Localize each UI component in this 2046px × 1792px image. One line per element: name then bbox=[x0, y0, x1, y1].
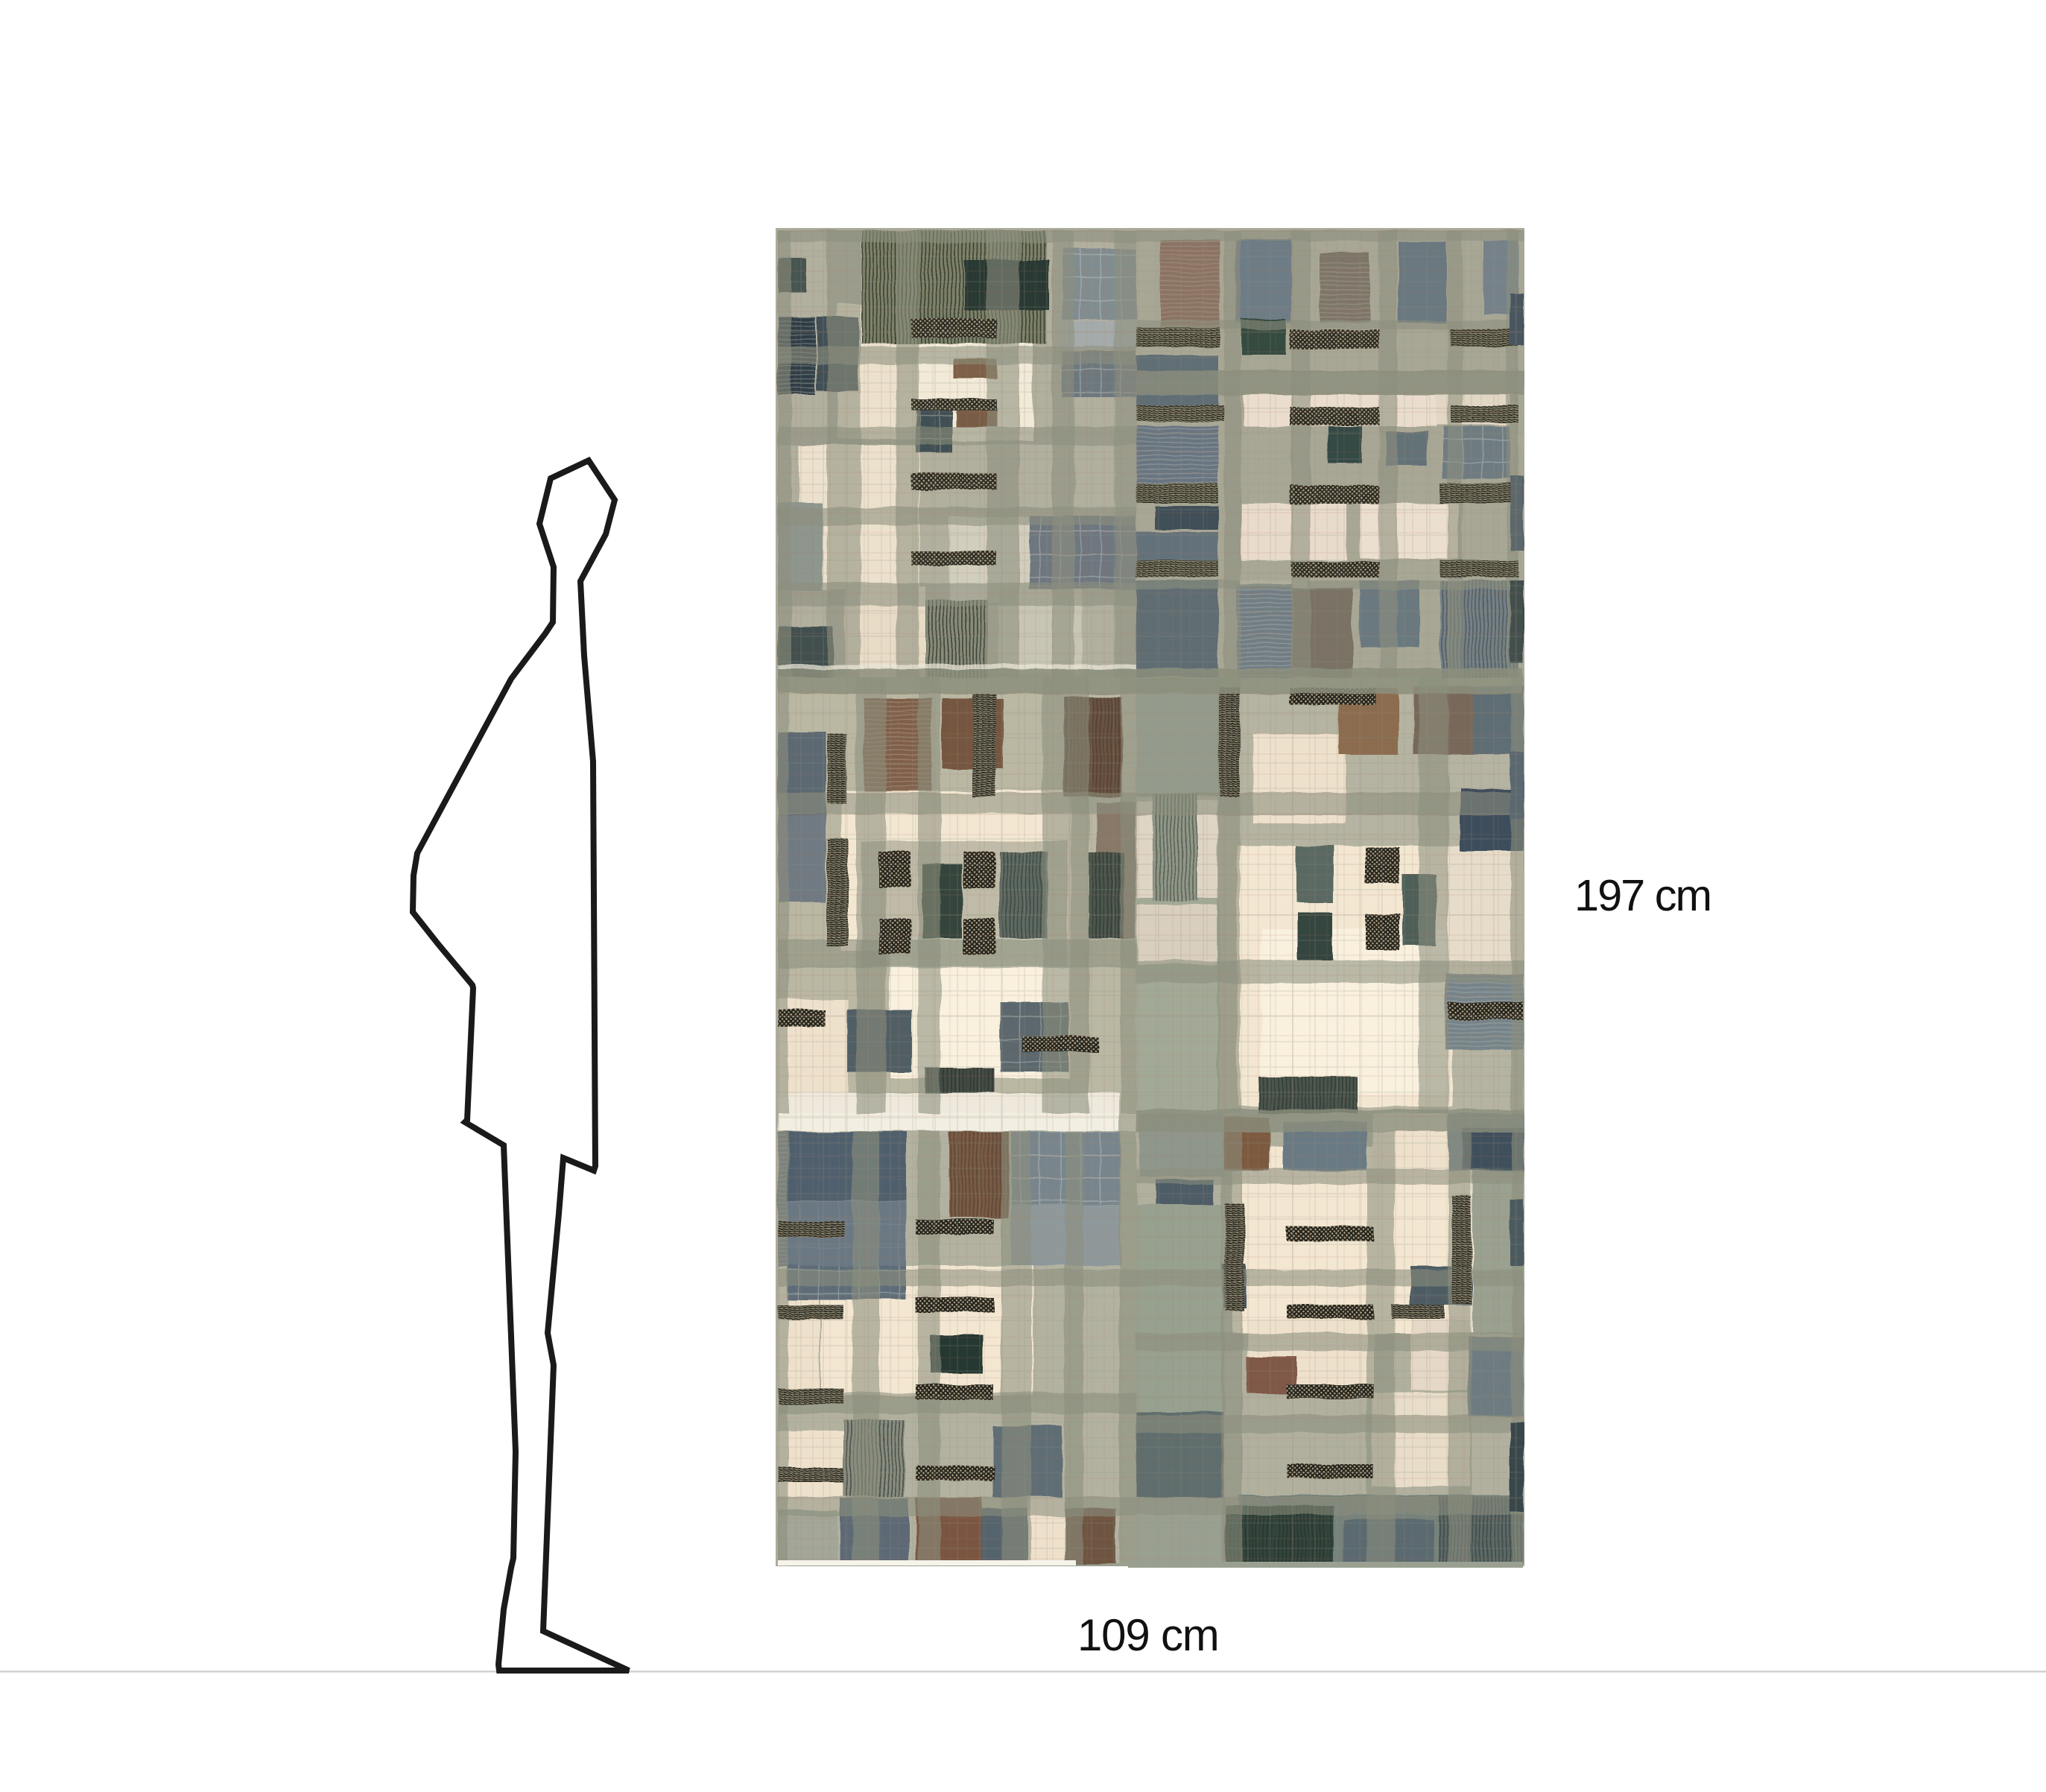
svg-text:197 cm: 197 cm bbox=[1574, 870, 1711, 920]
svg-text:109 cm: 109 cm bbox=[1077, 1610, 1219, 1660]
